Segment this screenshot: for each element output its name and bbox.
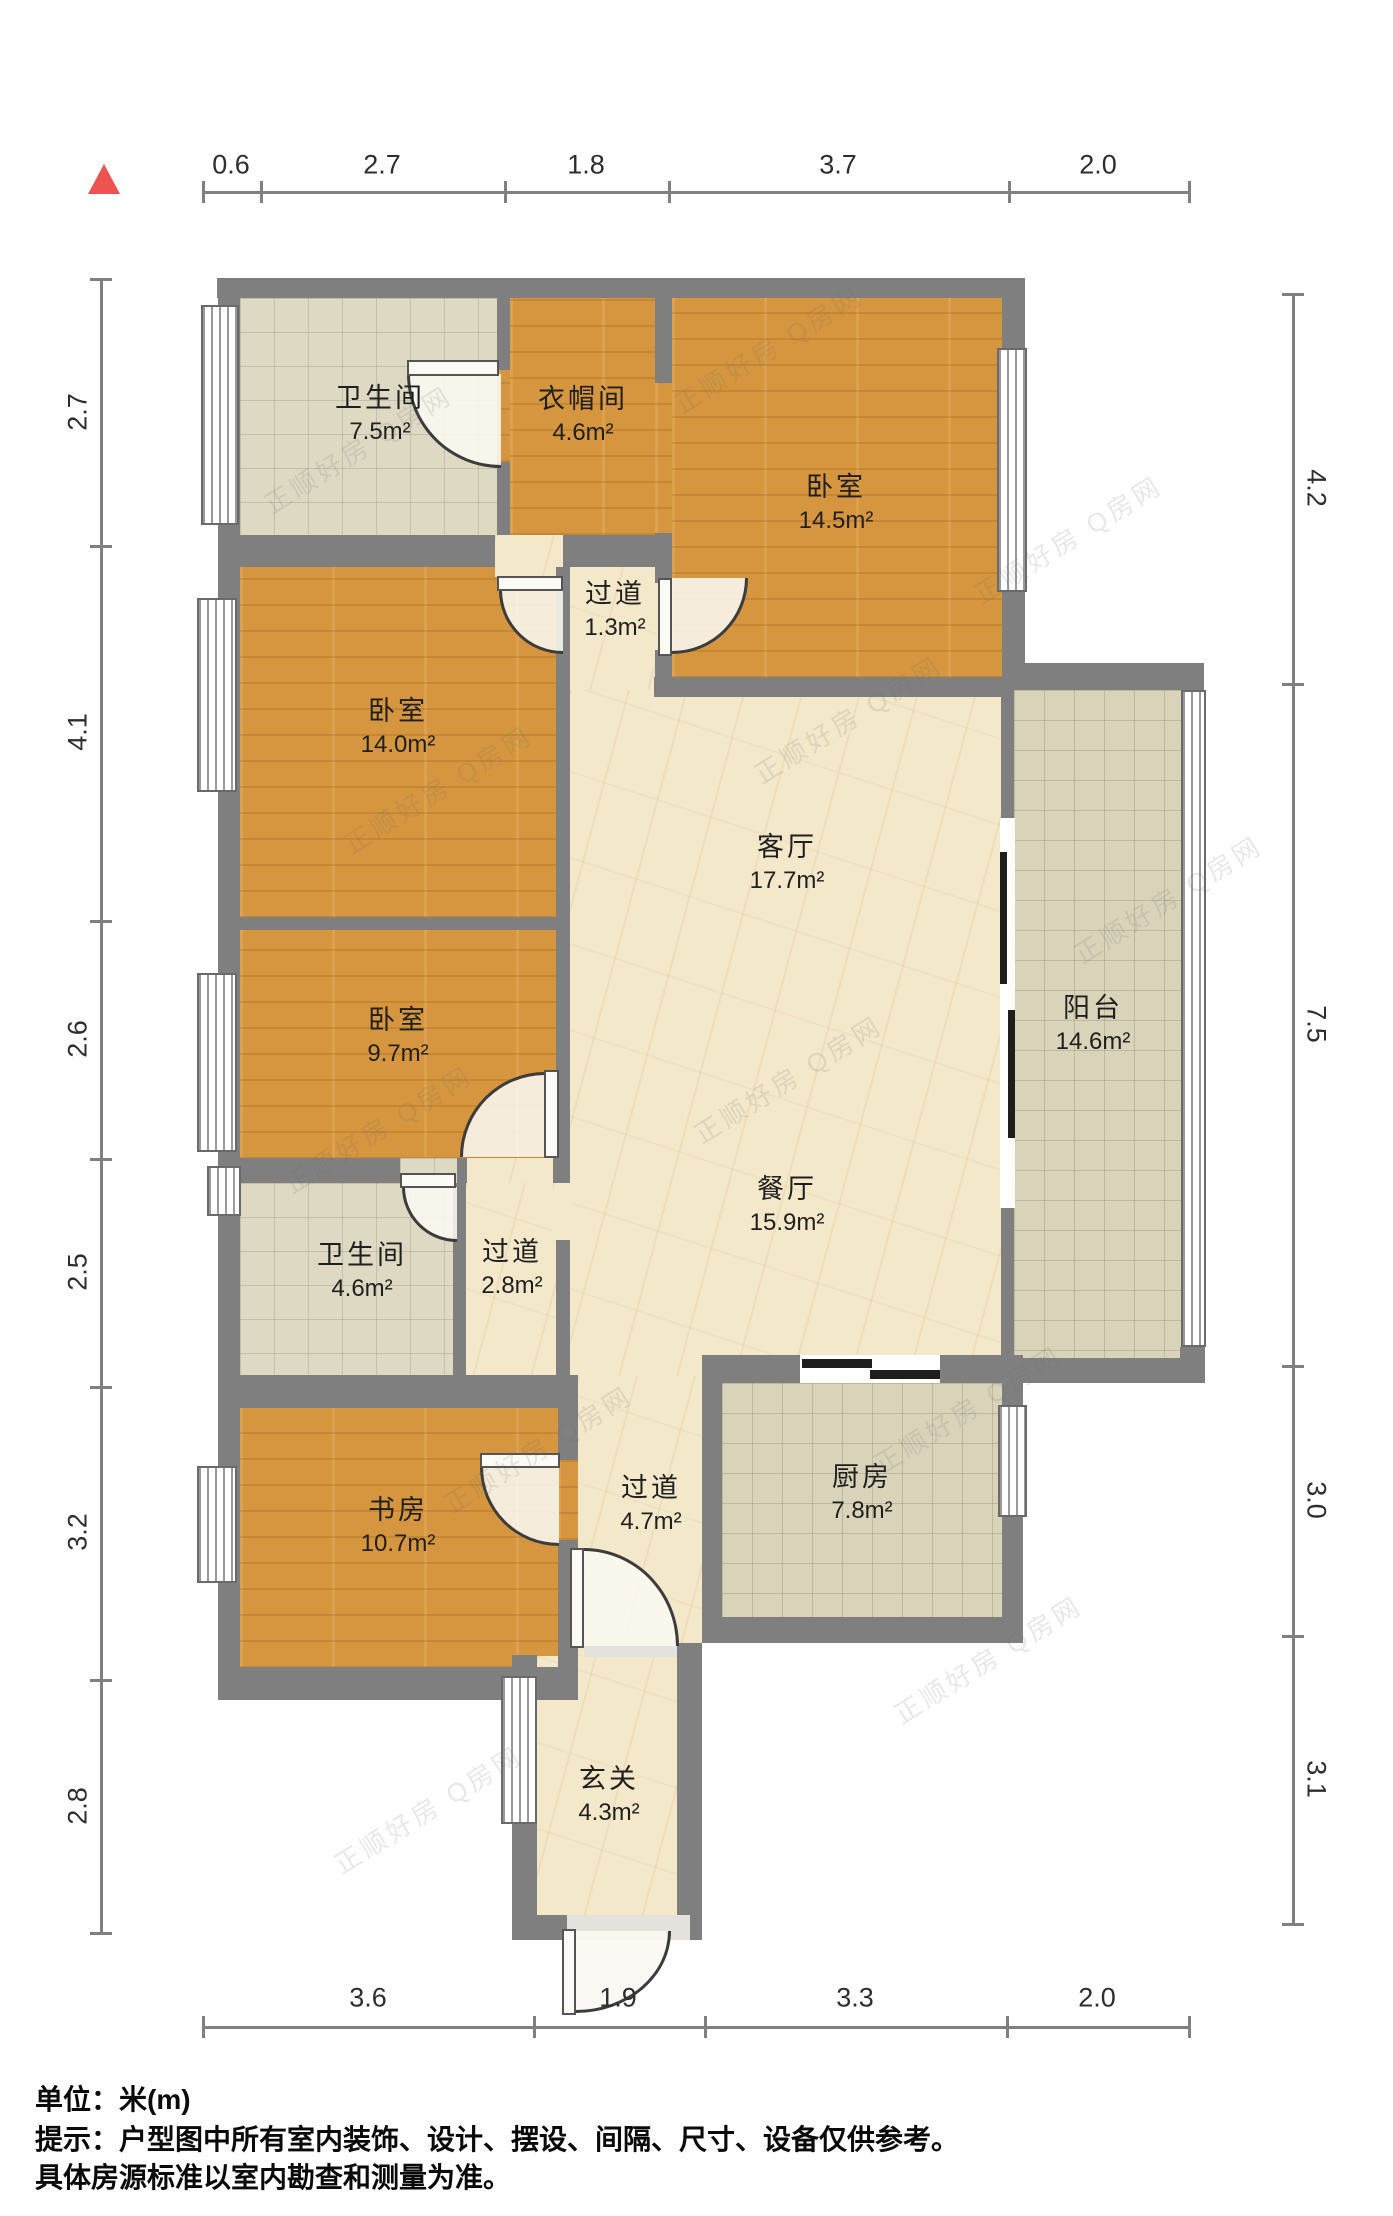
room-name: 过道 [620,1470,681,1506]
room-name: 过道 [481,1234,542,1270]
wall-bedroommid-bottom-c [553,1158,570,1183]
door-leaf-bathroom-top [407,360,499,376]
dim-top-2: 1.8 [567,150,605,181]
room-area: 15.9m² [750,1207,825,1239]
dim-left-5: 2.8 [63,1787,94,1825]
room-area: 14.0m² [361,729,436,761]
dim-tick [704,2016,707,2038]
dim-right-3: 3.1 [1301,1760,1332,1798]
dim-line-right [1292,293,1295,1925]
room-label-bedroom-topright: 卧室 14.5m² [799,469,874,537]
wall-living-balcony-upper [1001,690,1014,820]
room-area: 4.6m² [538,417,628,449]
dim-tick [504,181,507,203]
room-name: 过道 [584,576,645,612]
door-leaf-main-entry [562,1929,576,2015]
wall-band-study-top [222,1375,578,1408]
wall-bedroomtr-bottom [654,677,1004,697]
window-bedroom-left [197,598,237,792]
door-leaf-bedroom-mid [544,1070,559,1158]
dim-tick [90,1158,112,1161]
room-name: 卧室 [367,1002,428,1038]
window-balcony [1181,690,1206,1347]
wall-entry-bottom-a [512,1915,567,1940]
dim-bottom-3: 2.0 [1078,1983,1116,2014]
room-name: 书房 [361,1492,436,1528]
dim-tick [90,1932,112,1935]
doorway-patch [558,1460,578,1540]
sliding-door-panel [1008,1010,1015,1138]
room-label-bathroom-low: 卫生间 4.6m² [317,1237,407,1305]
dim-tick [202,2016,205,2038]
note-tip-line2: 具体房源标准以室内勘查和测量为准。 [35,2156,511,2196]
door-leaf-bedroom-topright [658,578,672,656]
room-name: 客厅 [750,829,825,865]
room-area: 14.6m² [1056,1026,1131,1058]
room-label-study: 书房 10.7m² [361,1492,436,1560]
room-area: 4.7m² [620,1506,681,1538]
room-area: 4.6m² [317,1273,407,1305]
room-area: 14.5m² [799,505,874,537]
wall-bedroomtr-right-upper [1002,278,1025,353]
north-triangle-icon [88,164,120,194]
dim-tick [1282,683,1304,686]
dim-line-left [100,278,103,1935]
watermark-text: 正顺好房 Q房网 [327,1736,529,1882]
window-bathroom-low [207,1166,241,1216]
wall-balcony-corner [1180,1347,1205,1383]
sliding-door-panel [870,1370,940,1379]
dim-tick [1282,1365,1304,1368]
dim-right-0: 4.2 [1301,469,1332,507]
wall-entry-right [677,1643,702,1940]
wall-band-under-bath [222,535,495,567]
room-label-bedroom-mid: 卧室 9.7m² [367,1002,428,1070]
room-name: 衣帽间 [538,381,628,417]
dim-tick [533,2016,536,2038]
dim-tick [1282,1635,1304,1638]
dim-left-1: 4.1 [63,713,94,751]
wall-bath-closet [497,462,510,535]
wall-bedroommid-bottom-b [457,1158,467,1183]
wall-balcony-top [1002,663,1204,690]
floor-closet-opening [655,380,672,535]
wall-corridormid-right [556,1240,570,1375]
dim-tick [260,181,263,203]
window-study [197,1466,237,1583]
room-area: 7.8m² [831,1495,892,1527]
door-leaf-hallway-entry [570,1548,584,1648]
room-area: 4.3m² [578,1797,639,1829]
room-label-corridor-top: 过道 1.3m² [584,576,645,644]
room-label-corridor-mid: 过道 2.8m² [481,1234,542,1302]
room-area: 9.7m² [367,1038,428,1070]
room-area: 2.8m² [481,1270,542,1302]
dim-tick [1282,1923,1304,1926]
room-name: 卫生间 [317,1237,407,1273]
floor-plan-page: 卫生间 7.5m² 衣帽间 4.6m² 卧室 14.5m² 过道 1.3m² 卧… [0,0,1393,2216]
note-unit: 单位：米(m) [35,2078,191,2118]
dim-left-2: 2.6 [63,1020,94,1058]
note-tip-line1: 提示：户型图中所有室内装饰、设计、摆设、间隔、尺寸、设备仅供参考。 [35,2118,959,2158]
dim-right-2: 3.0 [1301,1481,1332,1519]
room-name: 餐厅 [750,1171,825,1207]
dim-left-0: 2.7 [63,393,94,431]
door-leaf-bathroom-low [400,1173,456,1188]
doorway-patch [457,1158,553,1183]
room-label-entry: 玄关 4.3m² [578,1761,639,1829]
dim-tick [1188,181,1191,203]
dim-tick [1188,2016,1191,2038]
wall-closet-bedroom [655,298,672,383]
dim-tick [90,278,112,281]
sliding-door-panel [802,1359,872,1368]
floor-corridor-mid-link [553,1183,573,1241]
dim-left-3: 2.5 [63,1253,94,1291]
dim-tick [1008,181,1011,203]
dim-tick [1282,293,1304,296]
dim-top-1: 2.7 [363,150,401,181]
dim-line-top [202,191,1190,194]
room-area: 1.3m² [584,612,645,644]
wall-kitchen-bottom [702,1617,1023,1643]
dim-tick [90,1386,112,1389]
dim-top-0: 0.6 [212,150,250,181]
room-name: 卧室 [361,693,436,729]
dim-bottom-2: 3.3 [836,1983,874,2014]
dim-tick [202,181,205,203]
room-label-closet: 衣帽间 4.6m² [538,381,628,449]
room-name: 阳台 [1056,990,1131,1026]
dim-bottom-1: 1.9 [599,1983,637,2014]
room-name: 卧室 [799,469,874,505]
dim-left-4: 3.2 [63,1513,94,1551]
dim-top-3: 3.7 [819,150,857,181]
dim-tick [90,1679,112,1682]
window-bedroom-mid [197,973,237,1152]
room-name: 玄关 [578,1761,639,1797]
room-label-dining: 餐厅 15.9m² [750,1171,825,1239]
room-area: 10.7m² [361,1528,436,1560]
dim-tick [668,181,671,203]
dim-tick [90,920,112,923]
dim-right-1: 7.5 [1301,1005,1332,1043]
wall-outer-top [217,278,1025,298]
dim-tick [1006,2016,1009,2038]
wall-dining-balcony-lower [1001,1205,1014,1358]
dim-line-bottom [202,2026,1190,2029]
wall-kitchen-top-a [702,1355,800,1383]
wall-corridor-bedroom [655,533,672,583]
sliding-door-panel [1000,852,1007,984]
door-leaf-bedroom-left [497,576,563,591]
wall-kitchen-left [702,1358,722,1643]
wall-bedroomleft-bottom [222,917,556,930]
room-label-balcony: 阳台 14.6m² [1056,990,1131,1058]
room-label-hallway: 过道 4.7m² [620,1470,681,1538]
window-kitchen [998,1405,1027,1517]
room-label-living: 客厅 17.7m² [750,829,825,897]
floor-living-dining [570,690,1001,1376]
dim-top-4: 2.0 [1079,150,1117,181]
window-bathroom-top [201,305,239,525]
room-label-bedroom-left: 卧室 14.0m² [361,693,436,761]
dim-tick [90,545,112,548]
dim-bottom-0: 3.6 [349,1983,387,2014]
room-area: 17.7m² [750,865,825,897]
